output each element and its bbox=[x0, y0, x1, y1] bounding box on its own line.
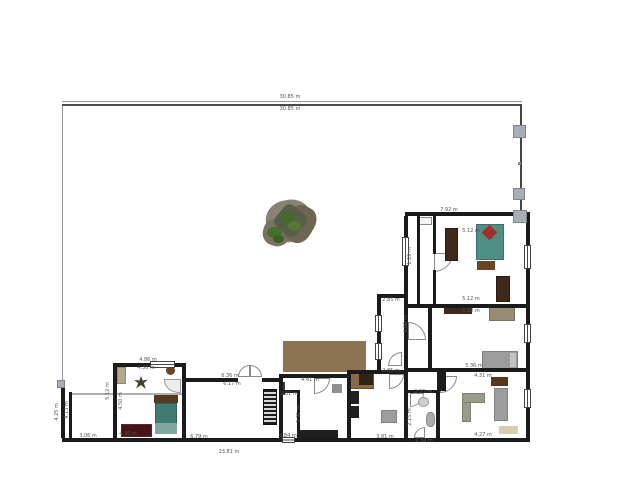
fence-post[interactable] bbox=[57, 380, 65, 388]
dimension-label: 5.36 m bbox=[465, 363, 483, 369]
dimension-label: 23.81 m bbox=[219, 449, 240, 455]
corner-sink[interactable] bbox=[164, 379, 181, 393]
dimension-label: 5.12 m bbox=[105, 382, 111, 400]
tree[interactable] bbox=[288, 221, 301, 231]
window[interactable] bbox=[524, 389, 531, 408]
dimension-label: 4.06 m bbox=[403, 315, 409, 333]
sofa-l-part-h[interactable] bbox=[462, 393, 485, 403]
fence-post[interactable] bbox=[513, 210, 527, 223]
dimension-label: 5.12 m bbox=[462, 308, 480, 314]
terrace-deck[interactable] bbox=[283, 341, 366, 372]
bed-bench[interactable] bbox=[477, 261, 495, 270]
dimension-label: 6.36 m bbox=[221, 373, 239, 379]
dimension-label: 2.33 m bbox=[414, 389, 432, 395]
window[interactable] bbox=[524, 245, 531, 269]
tv-cabinet[interactable] bbox=[491, 377, 508, 386]
kitchen-counter-dark[interactable] bbox=[359, 374, 373, 385]
door[interactable] bbox=[389, 374, 404, 389]
entry-cabinet[interactable] bbox=[419, 217, 432, 225]
wall-unit[interactable] bbox=[494, 388, 508, 421]
door[interactable] bbox=[414, 427, 425, 438]
heater-column[interactable] bbox=[437, 370, 446, 391]
wardrobe-left[interactable] bbox=[445, 228, 458, 261]
plot-boundary[interactable] bbox=[62, 106, 63, 383]
tall-cabinet[interactable] bbox=[117, 367, 126, 384]
wall[interactable] bbox=[279, 378, 283, 440]
plot-boundary[interactable] bbox=[62, 101, 522, 102]
fence-post[interactable] bbox=[513, 188, 525, 200]
window[interactable] bbox=[375, 315, 382, 332]
dimension-label: 0.84 m bbox=[279, 433, 297, 439]
dimension-label: 4.36 m bbox=[137, 365, 155, 371]
wall-shelf[interactable] bbox=[332, 384, 342, 393]
floor-plan: 30.85 m30.85 m7.92 m5.12 m5.12 m5.12 m5.… bbox=[0, 0, 640, 480]
fence-post[interactable] bbox=[518, 162, 521, 165]
dimension-label: 30.85 m bbox=[280, 94, 301, 100]
wall[interactable] bbox=[404, 368, 440, 372]
window[interactable] bbox=[524, 324, 531, 343]
wall[interactable] bbox=[405, 212, 530, 216]
wall[interactable] bbox=[347, 370, 351, 440]
door[interactable] bbox=[250, 365, 262, 377]
dimension-label: 6.17 m bbox=[223, 381, 241, 387]
bath-sink[interactable] bbox=[418, 397, 429, 407]
teal-bed[interactable] bbox=[155, 403, 177, 424]
bench-dark[interactable] bbox=[300, 430, 338, 438]
dimension-label: 4.13 m bbox=[64, 401, 70, 419]
dimension-label: 4.31 m bbox=[474, 373, 492, 379]
wardrobe-right[interactable] bbox=[496, 276, 510, 302]
wall[interactable] bbox=[417, 216, 420, 304]
bed-pillow[interactable] bbox=[510, 353, 516, 367]
window[interactable] bbox=[375, 343, 382, 360]
kitchen-table[interactable] bbox=[381, 410, 397, 423]
wall[interactable] bbox=[377, 294, 381, 372]
wall[interactable] bbox=[433, 216, 436, 254]
dimension-label: 2.85 m bbox=[382, 368, 400, 374]
dimension-label: 1.91 m bbox=[296, 405, 302, 423]
dimension-label: 4.41 m bbox=[301, 377, 319, 383]
dimension-label: 4.86 m bbox=[139, 357, 157, 363]
dimension-label: 7.92 m bbox=[440, 207, 458, 213]
dimension-label: 3.81 m bbox=[376, 434, 394, 440]
dimension-label: 6.79 m bbox=[190, 434, 208, 440]
wall[interactable] bbox=[113, 367, 117, 440]
dimension-label: 2.34 m bbox=[415, 438, 433, 444]
stairs[interactable] bbox=[263, 389, 277, 425]
wall[interactable] bbox=[433, 270, 436, 304]
fence-post[interactable] bbox=[513, 125, 526, 138]
eagle-decor[interactable] bbox=[134, 376, 148, 389]
door[interactable] bbox=[238, 365, 250, 377]
bed-blanket[interactable] bbox=[155, 423, 177, 434]
door[interactable] bbox=[408, 322, 426, 340]
bed-headboard[interactable] bbox=[154, 395, 178, 403]
dimension-label: 5.12 m bbox=[462, 228, 480, 234]
dimension-label: 2.85 m bbox=[382, 297, 400, 303]
wall[interactable] bbox=[436, 390, 440, 440]
dimension-label: 4.25 m bbox=[54, 403, 60, 421]
dimension-label: 3.06 m bbox=[79, 433, 97, 439]
dimension-label: 30.85 m bbox=[280, 106, 301, 112]
wall[interactable] bbox=[428, 308, 432, 372]
desk[interactable] bbox=[489, 306, 515, 321]
dimension-label: 4.27 m bbox=[474, 432, 492, 438]
living-rug[interactable] bbox=[499, 426, 518, 434]
dimension-label: 2.01 m bbox=[280, 391, 298, 397]
dimension-label: 4.36 m bbox=[119, 431, 137, 437]
wall[interactable] bbox=[262, 378, 279, 382]
dimension-label: 1.19 m bbox=[407, 247, 413, 265]
wall[interactable] bbox=[182, 367, 186, 440]
toilet[interactable] bbox=[426, 412, 435, 427]
dimension-label: 5.12 m bbox=[462, 296, 480, 302]
dimension-label: 2.15 m bbox=[407, 408, 413, 426]
dimension-label: 4.50 m bbox=[118, 392, 124, 410]
tree[interactable] bbox=[273, 235, 284, 243]
door[interactable] bbox=[388, 352, 402, 366]
